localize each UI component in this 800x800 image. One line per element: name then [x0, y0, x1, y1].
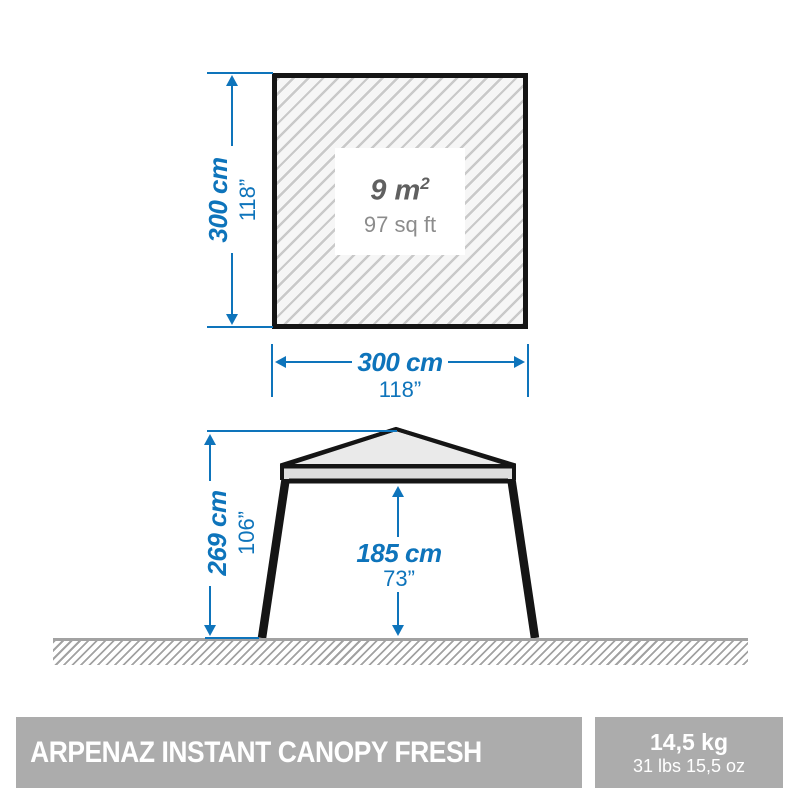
canopy-roof	[282, 429, 514, 466]
ground-hatch	[53, 641, 748, 665]
down-arrowhead-icon	[392, 625, 404, 636]
clearance-line-lower	[397, 592, 399, 626]
weight-imperial-label: 31 lbs 15,5 oz	[633, 757, 745, 775]
total-height-line-lower	[209, 586, 211, 626]
total-height-extension-top	[207, 430, 397, 432]
total-height-line-upper	[209, 443, 211, 481]
canopy-right-leg	[510, 470, 535, 638]
product-dimension-diagram: 9 m2 97 sq ft 300 cm 118” 300 cm 118” 26…	[0, 0, 800, 800]
product-name-bar: ARPENAZ INSTANT CANOPY FRESH	[16, 717, 582, 788]
total-height-imperial-label: 106”	[236, 485, 258, 581]
canopy-left-leg	[262, 470, 287, 638]
down-arrowhead-icon	[204, 625, 216, 636]
canopy-side-view	[0, 0, 800, 800]
clearance-line-upper	[397, 495, 399, 537]
weight-badge: 14,5 kg 31 lbs 15,5 oz	[595, 717, 783, 788]
total-height-extension-bottom	[205, 637, 259, 639]
clearance-imperial-label: 73”	[349, 568, 449, 590]
clearance-metric-label: 185 cm	[339, 540, 459, 566]
total-height-metric-label: 269 cm	[204, 481, 230, 585]
product-name: ARPENAZ INSTANT CANOPY FRESH	[16, 736, 482, 770]
weight-metric-label: 14,5 kg	[650, 731, 728, 754]
